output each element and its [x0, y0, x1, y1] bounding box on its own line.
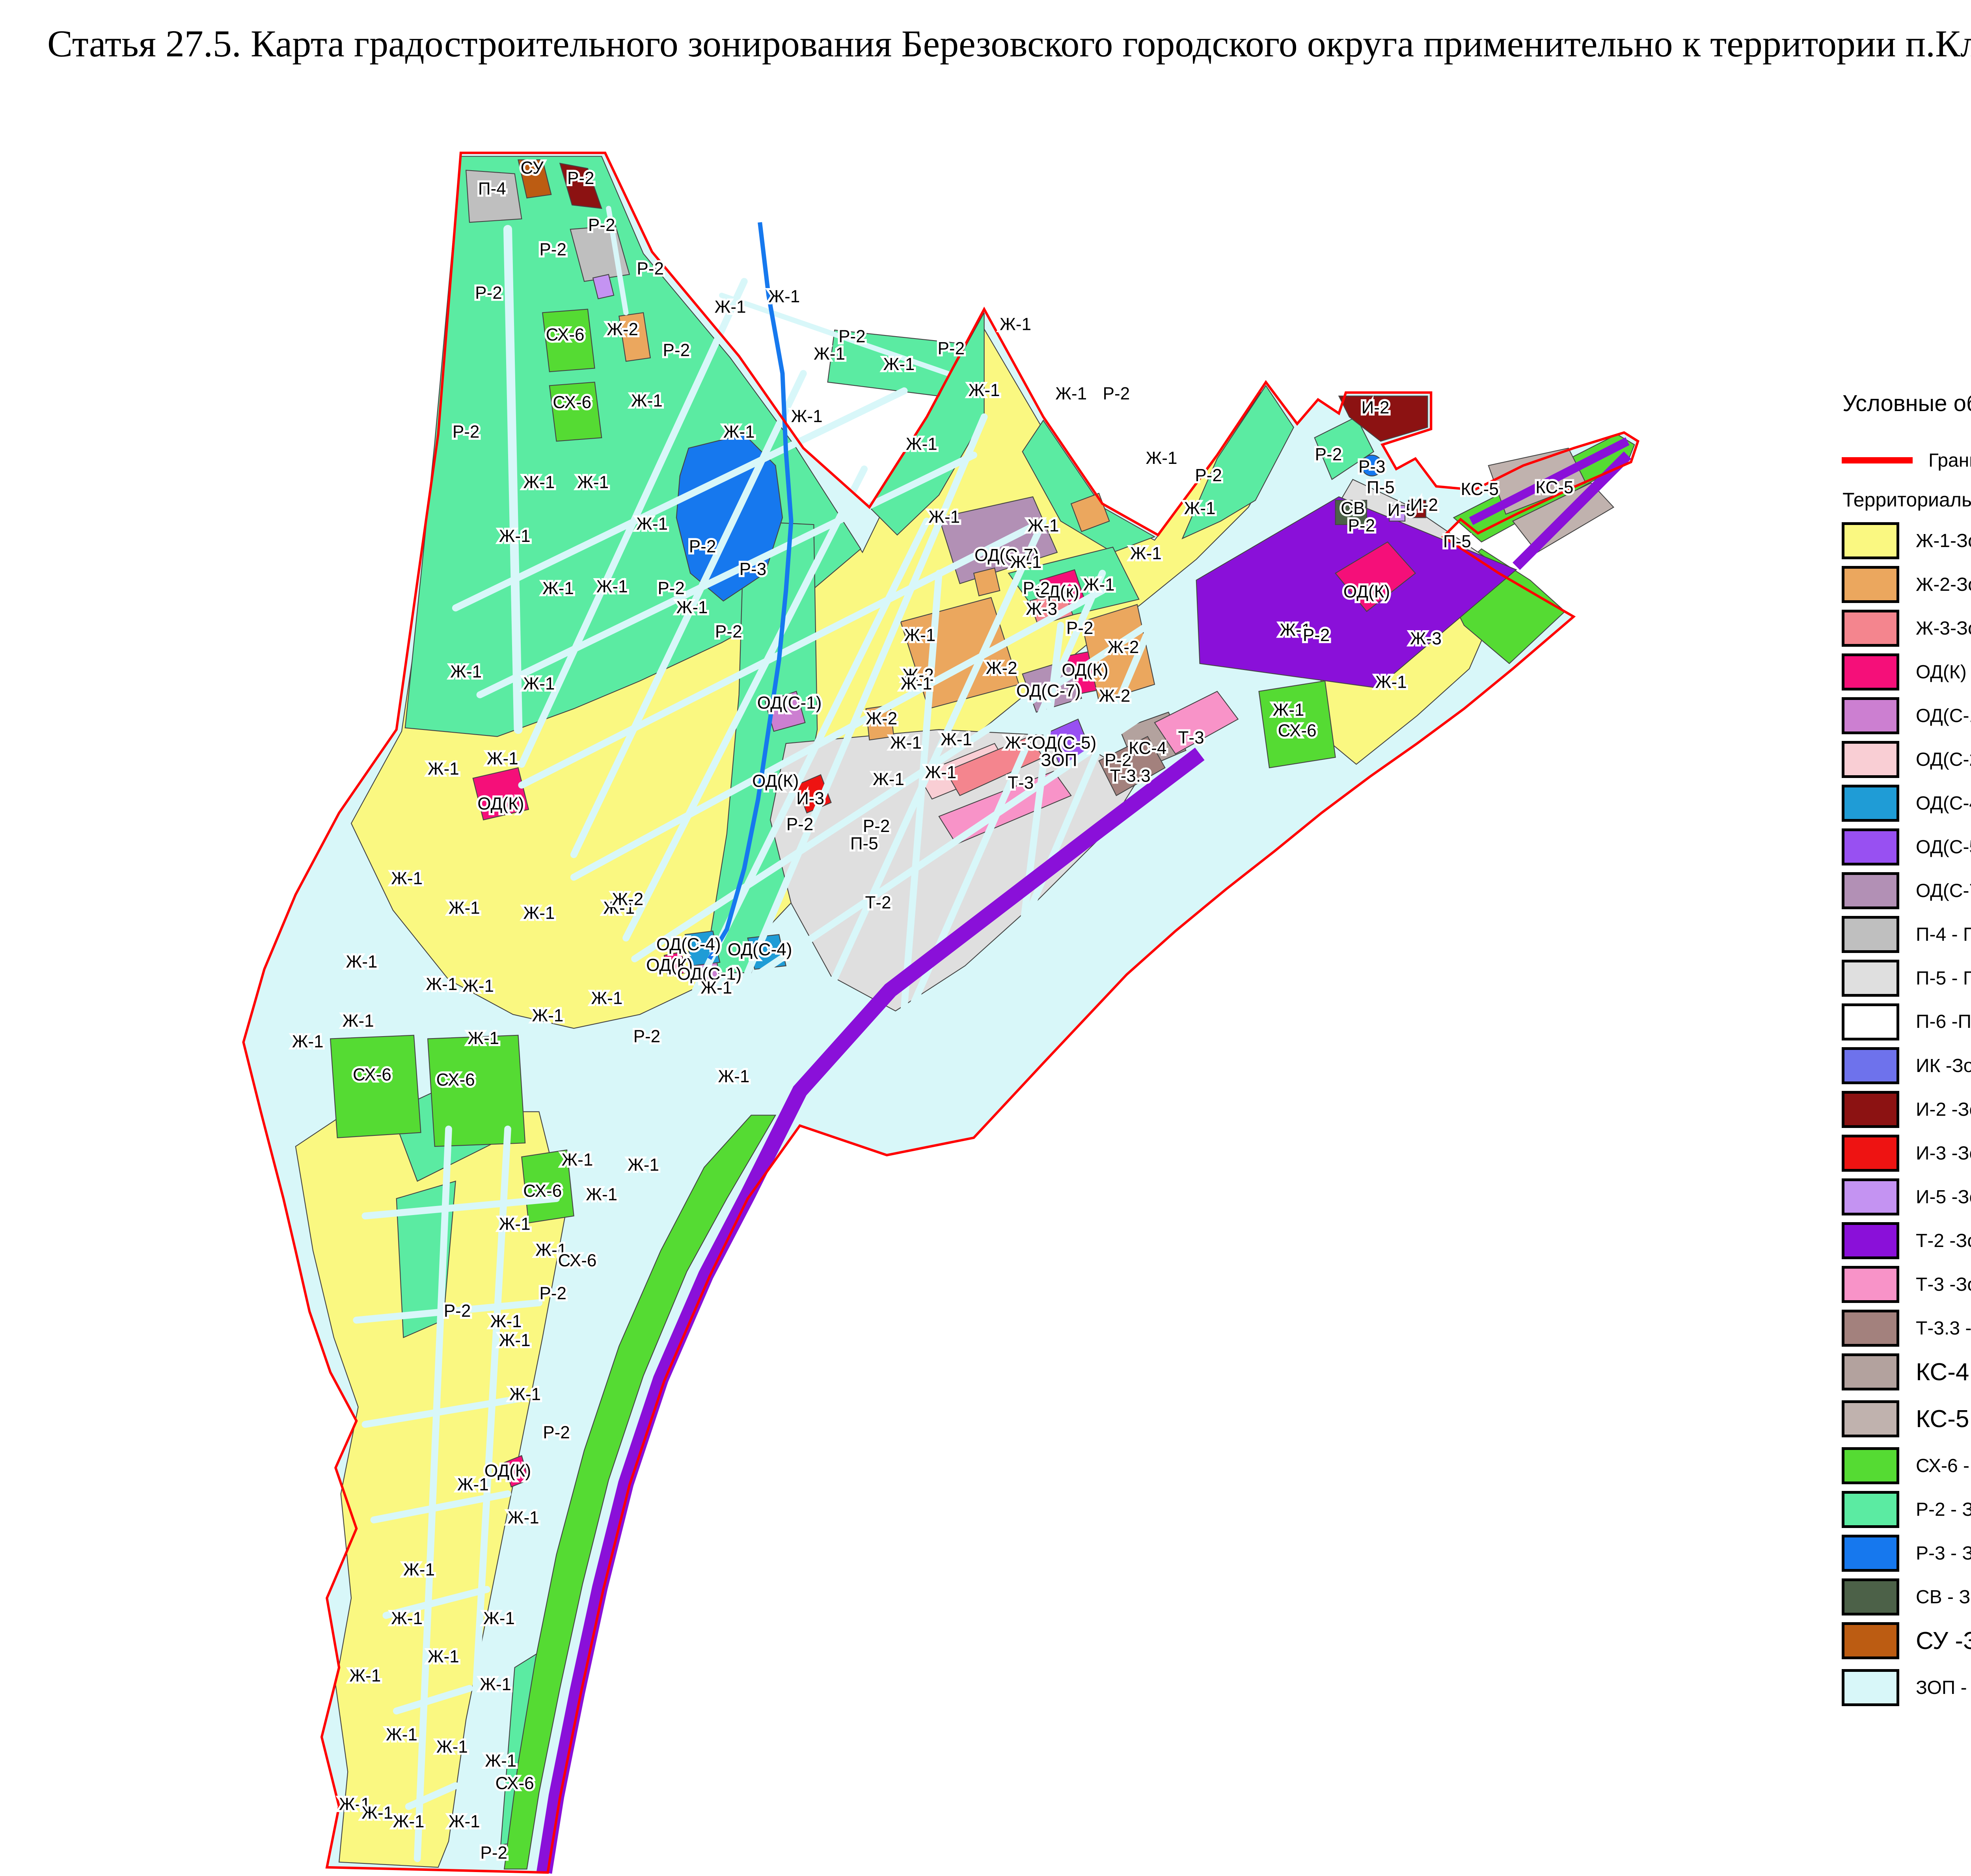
zone-label: ОД(К)	[1343, 582, 1390, 601]
zone-label: Ж-1	[490, 1312, 522, 1331]
zone-label: Ж-1	[436, 1737, 468, 1757]
boundary-line-swatch	[1842, 457, 1913, 463]
zone-label: Р-2	[838, 327, 866, 346]
zoning-map-page: Статья 27.5. Карта градостроительного зо…	[0, 0, 1971, 1876]
legend-swatch	[1842, 522, 1899, 559]
legend-item-label: Ж-3-Зона среднеэтажных многоквартирных ж…	[1916, 618, 1971, 639]
legend-swatch	[1842, 741, 1899, 778]
zone-label: Ж-1	[791, 407, 823, 426]
zone-label: Ж-1	[508, 1508, 539, 1527]
zone-label: Ж-1	[768, 287, 800, 306]
zone-label: Ж-1	[487, 749, 518, 768]
zone-label: Ж-1	[1184, 499, 1216, 518]
zone-label: Ж-1	[890, 733, 922, 753]
zone-label: Р-2	[663, 341, 690, 360]
zone-label: Т-3	[1178, 728, 1204, 747]
legend-swatch	[1842, 1535, 1899, 1572]
legend-swatch	[1842, 1491, 1899, 1528]
zone-label: ОД(К)	[1062, 660, 1108, 679]
zone-label: Ж-1	[386, 1725, 417, 1744]
zone-label: Ж-1	[428, 759, 459, 779]
zone-label: Ж-1	[391, 869, 423, 888]
zone-label: КС-5	[1535, 478, 1573, 497]
zone-label: Т-3.3	[1110, 766, 1151, 785]
legend-item: Ж-3-Зона среднеэтажных многоквартирных ж…	[1842, 610, 1971, 647]
legend-item-label: И-3 -Зона электрообеспечивающих объектов…	[1916, 1143, 1971, 1164]
legend-item: Ж-2-Зона малоэтажных многоквартирных жил…	[1842, 566, 1971, 603]
zone-label: Ж-1	[631, 391, 663, 410]
legend-item: СУ -Зона специального назначения (утилиз…	[1842, 1622, 1971, 1659]
zone-label: Р-2	[588, 216, 615, 235]
zone-label: ОД(К)	[484, 1461, 531, 1480]
legend-item-label: СВ - Зона Специального назначения (ведом…	[1916, 1586, 1971, 1608]
zone-label: Ж-1	[941, 730, 972, 749]
zone-label: Ж-1	[450, 662, 482, 681]
zone-zh2-f	[974, 568, 1000, 596]
zone-label: Ж-1	[485, 1751, 516, 1770]
zone-label: Ж-1	[928, 508, 960, 527]
zone-label: Ж-1	[499, 527, 531, 546]
legend-item: Т-3.3 -Зона объектов автомобильного тран…	[1842, 1310, 1971, 1347]
legend-item: ОД(С-4) - Зона культовых религиозных ком…	[1842, 785, 1971, 822]
zone-label: КС-5	[1461, 480, 1499, 499]
zone-label: П-4	[478, 179, 506, 199]
zone-label: И-2	[1362, 398, 1390, 417]
legend-swatch	[1842, 1135, 1899, 1172]
zone-label: Ж-1	[718, 1067, 749, 1086]
zone-label: Ж-1	[1028, 516, 1059, 536]
zone-label: Ж-1	[676, 598, 708, 617]
legend-swatch	[1842, 653, 1899, 690]
zone-label: Ж-1	[561, 1150, 593, 1169]
zone-label: Ж-1	[449, 1812, 480, 1831]
legend-item: П-5 - Производственная зона V класса опа…	[1842, 960, 1971, 997]
zone-label: Ж-2	[1108, 638, 1139, 657]
legend-item: КС-5 -Коммунально-складская зона (подзон…	[1842, 1400, 1971, 1437]
zone-label: П-5	[1443, 532, 1471, 551]
zone-label: Р-2	[453, 422, 480, 442]
legend-item: Р-3 - Зона объектов связанных, с использ…	[1842, 1535, 1971, 1572]
zone-label: Т-3	[1008, 773, 1034, 793]
legend-swatch	[1842, 1310, 1899, 1347]
zone-label: Ж-1	[393, 1812, 425, 1831]
zone-label: Р-2	[863, 817, 890, 836]
zone-label: Ж-1	[700, 978, 732, 998]
zone-label: Ж-1	[532, 1006, 563, 1025]
legend-swatch	[1842, 1003, 1899, 1040]
legend-swatch	[1842, 1578, 1899, 1615]
zone-label: Ж-1	[480, 1675, 511, 1694]
legend-swatch	[1842, 872, 1899, 909]
legend-item: ИК -Зона объектов инженерной инфраструкт…	[1842, 1047, 1971, 1084]
zone-label: Р-2	[444, 1301, 471, 1321]
zone-label: Р-2	[658, 579, 685, 598]
zone-label: ОД(К)	[752, 772, 799, 791]
zone-label: Р-2	[637, 259, 664, 278]
zone-label: СХ-6	[496, 1774, 534, 1793]
zone-label: СХ-6	[353, 1065, 391, 1084]
legend-swatch	[1842, 697, 1899, 734]
zone-label: Ж-1	[499, 1331, 531, 1350]
zone-label: ОД(С-4)	[728, 940, 792, 959]
zone-label: Ж-1	[349, 1666, 381, 1685]
zone-label: Т-2	[865, 893, 891, 912]
legend-swatch	[1842, 1400, 1899, 1437]
zone-label: Ж-1	[586, 1185, 617, 1204]
zone-label: Ж-1	[904, 625, 935, 645]
zone-label: Ж-1	[723, 422, 755, 442]
zone-label: Ж-1	[542, 579, 574, 598]
legend-item-label: КС-4 -Коммунально-складская зона (подзон…	[1916, 1358, 1971, 1386]
zone-label: СУ	[521, 158, 544, 178]
legend-item-label: Ж-1-Зона застройки индивидуальными жилым…	[1916, 530, 1971, 552]
zone-label: Ж-1	[1130, 544, 1162, 563]
zone-label: СХ-6	[436, 1070, 475, 1090]
zone-label: Ж-1	[523, 473, 555, 492]
legend-item-label: Р-3 - Зона объектов связанных, с использ…	[1916, 1543, 1971, 1564]
zone-label: СХ-6	[553, 393, 591, 412]
zone-label: Ж-1	[1375, 672, 1407, 692]
zone-label: Ж-1	[901, 674, 932, 694]
zone-label: Ж-1	[873, 770, 904, 789]
legend-item-label: Т-3.3 -Зона объектов автомобильного тран…	[1916, 1318, 1971, 1339]
zone-label: Р-3	[740, 560, 767, 579]
legend-item: СХ-6 - Зона сельскохозяйственного исполь…	[1842, 1447, 1971, 1484]
legend-item: Т-2 -Зона железнодорожного транспорта	[1842, 1222, 1971, 1259]
zone-label: Р-2	[1348, 516, 1375, 536]
zone-label: Ж-1	[449, 898, 480, 918]
zone-label: Ж-2	[866, 709, 897, 728]
zone-label: Ж-1	[925, 763, 956, 782]
legend-item: И-5 -Зона теплообеспечивающих объектов и…	[1842, 1178, 1971, 1215]
legend-panel: Условные обозначения Граница поселка Тер…	[1842, 390, 1971, 1713]
legend-swatch	[1842, 785, 1899, 822]
legend-boundary-row: Граница поселка	[1842, 443, 1971, 478]
zone-label: Ж-1	[1000, 315, 1031, 334]
zone-label: Р-2	[1066, 619, 1094, 638]
legend-swatch	[1842, 566, 1899, 603]
legend-item: ОД(С-2) - Зона лечебно-оздоровительных к…	[1842, 741, 1971, 778]
zone-label: Р-2	[938, 339, 965, 358]
zone-label: И-2	[1410, 495, 1438, 515]
zone-label: Ж-1	[361, 1803, 393, 1823]
boundary-label: Граница поселка	[1928, 450, 1971, 471]
zone-label: Р-2	[633, 1027, 661, 1046]
zone-label: СХ-6	[523, 1182, 562, 1201]
legend-item-label: Ж-2-Зона малоэтажных многоквартирных жил…	[1916, 574, 1971, 596]
legend-item-label: Т-2 -Зона железнодорожного транспорта	[1916, 1230, 1971, 1252]
legend-swatch	[1842, 916, 1899, 953]
zone-label: Ж-1	[628, 1156, 659, 1175]
zone-label: Р-3	[1358, 457, 1386, 476]
legend-item-label: ОД(С-5) - Зона спортивных комплексов	[1916, 836, 1971, 858]
zone-label: П-5	[850, 834, 878, 853]
legend-header: Условные обозначения	[1842, 390, 1971, 417]
zone-label: ОД(С-5)	[1032, 733, 1097, 753]
zone-label: Ж-1	[1055, 384, 1087, 404]
zone-label: Ж-1	[483, 1609, 515, 1628]
zone-label: Ж-1	[1273, 700, 1304, 720]
zone-label: Ж-1	[499, 1214, 531, 1234]
legend-item: КС-4 -Коммунально-складская зона (подзон…	[1842, 1353, 1971, 1390]
legend-item-label: ОД(С-1) - Зона торговых комплексов	[1916, 705, 1971, 727]
zone-label: Р-2	[1195, 466, 1222, 485]
zone-label: Р-2	[1103, 384, 1130, 404]
legend-swatch	[1842, 1447, 1899, 1484]
legend-item-label: ОД(С-2) - Зона лечебно-оздоровительных к…	[1916, 749, 1971, 770]
zone-label: ЗОП	[1041, 751, 1077, 770]
legend-swatch	[1842, 1266, 1899, 1303]
zone-label: СХ-6	[1278, 721, 1317, 741]
legend-item-label: СХ-6 - Зона сельскохозяйственного исполь…	[1916, 1455, 1971, 1477]
zone-label: Ж-1	[462, 977, 494, 996]
zone-label: Ж-1	[636, 514, 668, 534]
zone-label: Ж-1	[969, 381, 1000, 400]
zone-label: ОД(К)	[477, 794, 524, 813]
legend-swatch	[1842, 610, 1899, 647]
legend-swatch	[1842, 960, 1899, 997]
legend-swatch	[1842, 828, 1899, 865]
zone-label: Р-2	[539, 240, 566, 259]
zone-sx6-c	[330, 1035, 421, 1138]
zone-label: Р-2	[475, 283, 502, 303]
zone-label: ОД(С-7)	[1016, 681, 1081, 700]
legend-item: Ж-1-Зона застройки индивидуальными жилым…	[1842, 522, 1971, 559]
zone-label: Ж-1	[577, 473, 609, 492]
zone-label: Р-2	[1023, 579, 1050, 598]
zone-label: Р-2	[567, 169, 594, 188]
zone-label: СХ-6	[558, 1251, 596, 1270]
zone-label: Ж-1	[346, 952, 378, 971]
zone-label: Ж-3	[1410, 629, 1442, 648]
zone-label: Р-2	[543, 1423, 570, 1442]
legend-item-label: Р-2 - Зона городских парков, скверов, са…	[1916, 1499, 1971, 1521]
zone-label: Р-2	[715, 622, 742, 642]
legend-item: И-3 -Зона электрообеспечивающих объектов…	[1842, 1135, 1971, 1172]
legend-item: И-2 -Зона водоотводящих объектов инженер…	[1842, 1091, 1971, 1128]
zone-label: Р-2	[786, 815, 814, 834]
zone-label: Ж-1	[468, 1029, 499, 1048]
legend-item-label: ЗОП - Зона общего пользования	[1916, 1677, 1971, 1699]
zone-label: Ж-1	[1083, 575, 1115, 595]
legend-item-label: ОД(С-4) - Зона культовых религиозных ком…	[1916, 793, 1971, 814]
legend-swatch	[1842, 1222, 1899, 1259]
zone-label: Ж-1	[596, 577, 628, 596]
legend-swatch	[1842, 1178, 1899, 1215]
legend-item: Р-2 - Зона городских парков, скверов, са…	[1842, 1491, 1971, 1528]
zone-label: Р-2	[689, 537, 716, 556]
zone-label: Ж-2	[986, 659, 1017, 678]
legend-items: Ж-1-Зона застройки индивидуальными жилым…	[1842, 522, 1971, 1706]
zone-label: П-5	[1367, 478, 1395, 497]
zone-label: Ж-1	[509, 1385, 541, 1404]
zone-label: И-3	[796, 789, 824, 808]
zone-label: Ж-1	[428, 1647, 459, 1666]
zone-label: Р-2	[1303, 625, 1330, 645]
zone-label: Ж-1	[403, 1560, 435, 1580]
legend-swatch	[1842, 1091, 1899, 1128]
zone-label: Ж-2	[607, 320, 638, 339]
zone-label: Ж-1	[523, 904, 555, 923]
legend-item: ОД(С-5) - Зона спортивных комплексов	[1842, 828, 1971, 865]
legend-swatch	[1842, 1047, 1899, 1084]
zone-label: Ж-1	[814, 344, 845, 363]
zone-label: Ж-1	[343, 1011, 374, 1031]
legend-swatch	[1842, 1669, 1899, 1706]
legend-item-label: ИК -Зона объектов инженерной инфраструкт…	[1916, 1055, 1971, 1077]
zone-label: Ж-2	[1099, 687, 1130, 706]
zone-label: Ж-2	[612, 890, 643, 909]
zone-label: Ж-3	[1026, 599, 1057, 619]
legend-item-label: Т-3 -Зона объектов автомобильного трансп…	[1916, 1274, 1971, 1295]
legend-swatch	[1842, 1353, 1899, 1390]
legend-item-label: И-2 -Зона водоотводящих объектов инженер…	[1916, 1099, 1971, 1120]
legend-item: П-4 - Производственная зона IV класса оп…	[1842, 916, 1971, 953]
legend-item: П-6 -Производственная зона, не требующая…	[1842, 1003, 1971, 1040]
legend-item-label: П-6 -Производственная зона, не требующая…	[1916, 1010, 1971, 1034]
legend-item-label: И-5 -Зона теплообеспечивающих объектов и…	[1916, 1186, 1971, 1208]
legend-item: СВ - Зона Специального назначения (ведом…	[1842, 1578, 1971, 1615]
legend-item-label: КС-5 -Коммунально-складская зона (подзон…	[1916, 1405, 1971, 1433]
zone-label: Ж-1	[523, 674, 555, 694]
zoning-map: СУР-2П-4Р-2Р-2Р-2Р-2СХ-6Ж-2Р-2Ж-1Ж-1Ж-1Р…	[0, 0, 1971, 1876]
legend-item: ОД(С-7) - Зона школьных, дошкольных учеб…	[1842, 872, 1971, 909]
zone-label: Ж-1	[426, 975, 457, 994]
zone-label: СХ-6	[546, 325, 585, 344]
zone-label: Р-2	[539, 1284, 566, 1303]
legend-item-label: П-5 - Производственная зона V класса опа…	[1916, 968, 1971, 989]
zone-label: Ж-1	[715, 297, 746, 316]
legend-item: ОД(К) - Общественно-деловая зона (компле…	[1842, 653, 1971, 690]
legend-item: ЗОП - Зона общего пользования	[1842, 1669, 1971, 1706]
zone-label: Ж-1	[591, 988, 622, 1008]
legend-item: ОД(С-1) - Зона торговых комплексов	[1842, 697, 1971, 734]
zone-label: Р-2	[1315, 445, 1342, 464]
legend-item-label: СУ -Зона специального назначения (утилиз…	[1916, 1627, 1971, 1655]
zone-label: Ж-1	[1010, 553, 1042, 572]
zone-label: Р-2	[480, 1843, 507, 1863]
legend-swatch	[1842, 1622, 1899, 1659]
zone-label: СВ	[1341, 499, 1365, 518]
zone-label: КС-4	[1129, 739, 1166, 758]
legend-item-label: ОД(С-7) - Зона школьных, дошкольных учеб…	[1916, 880, 1971, 902]
zone-label: Ж-1	[457, 1475, 489, 1494]
zone-label: Ж-1	[1146, 449, 1177, 468]
zone-label: Ж-1	[906, 435, 937, 454]
zone-label: Ж-1	[292, 1032, 324, 1052]
legend-item: Т-3 -Зона объектов автомобильного трансп…	[1842, 1266, 1971, 1303]
legend-item-label: ОД(К) - Общественно-деловая зона (компле…	[1916, 661, 1971, 683]
zone-label: Ж-1	[883, 355, 915, 374]
legend-zones-header: Территориальные зоны	[1842, 488, 1971, 511]
legend-item-label: П-4 - Производственная зона IV класса оп…	[1916, 924, 1971, 945]
zone-label: ОД(С-1)	[757, 693, 822, 713]
zone-label: Ж-1	[391, 1609, 423, 1628]
zone-label: ОД(С-4)	[656, 935, 721, 954]
